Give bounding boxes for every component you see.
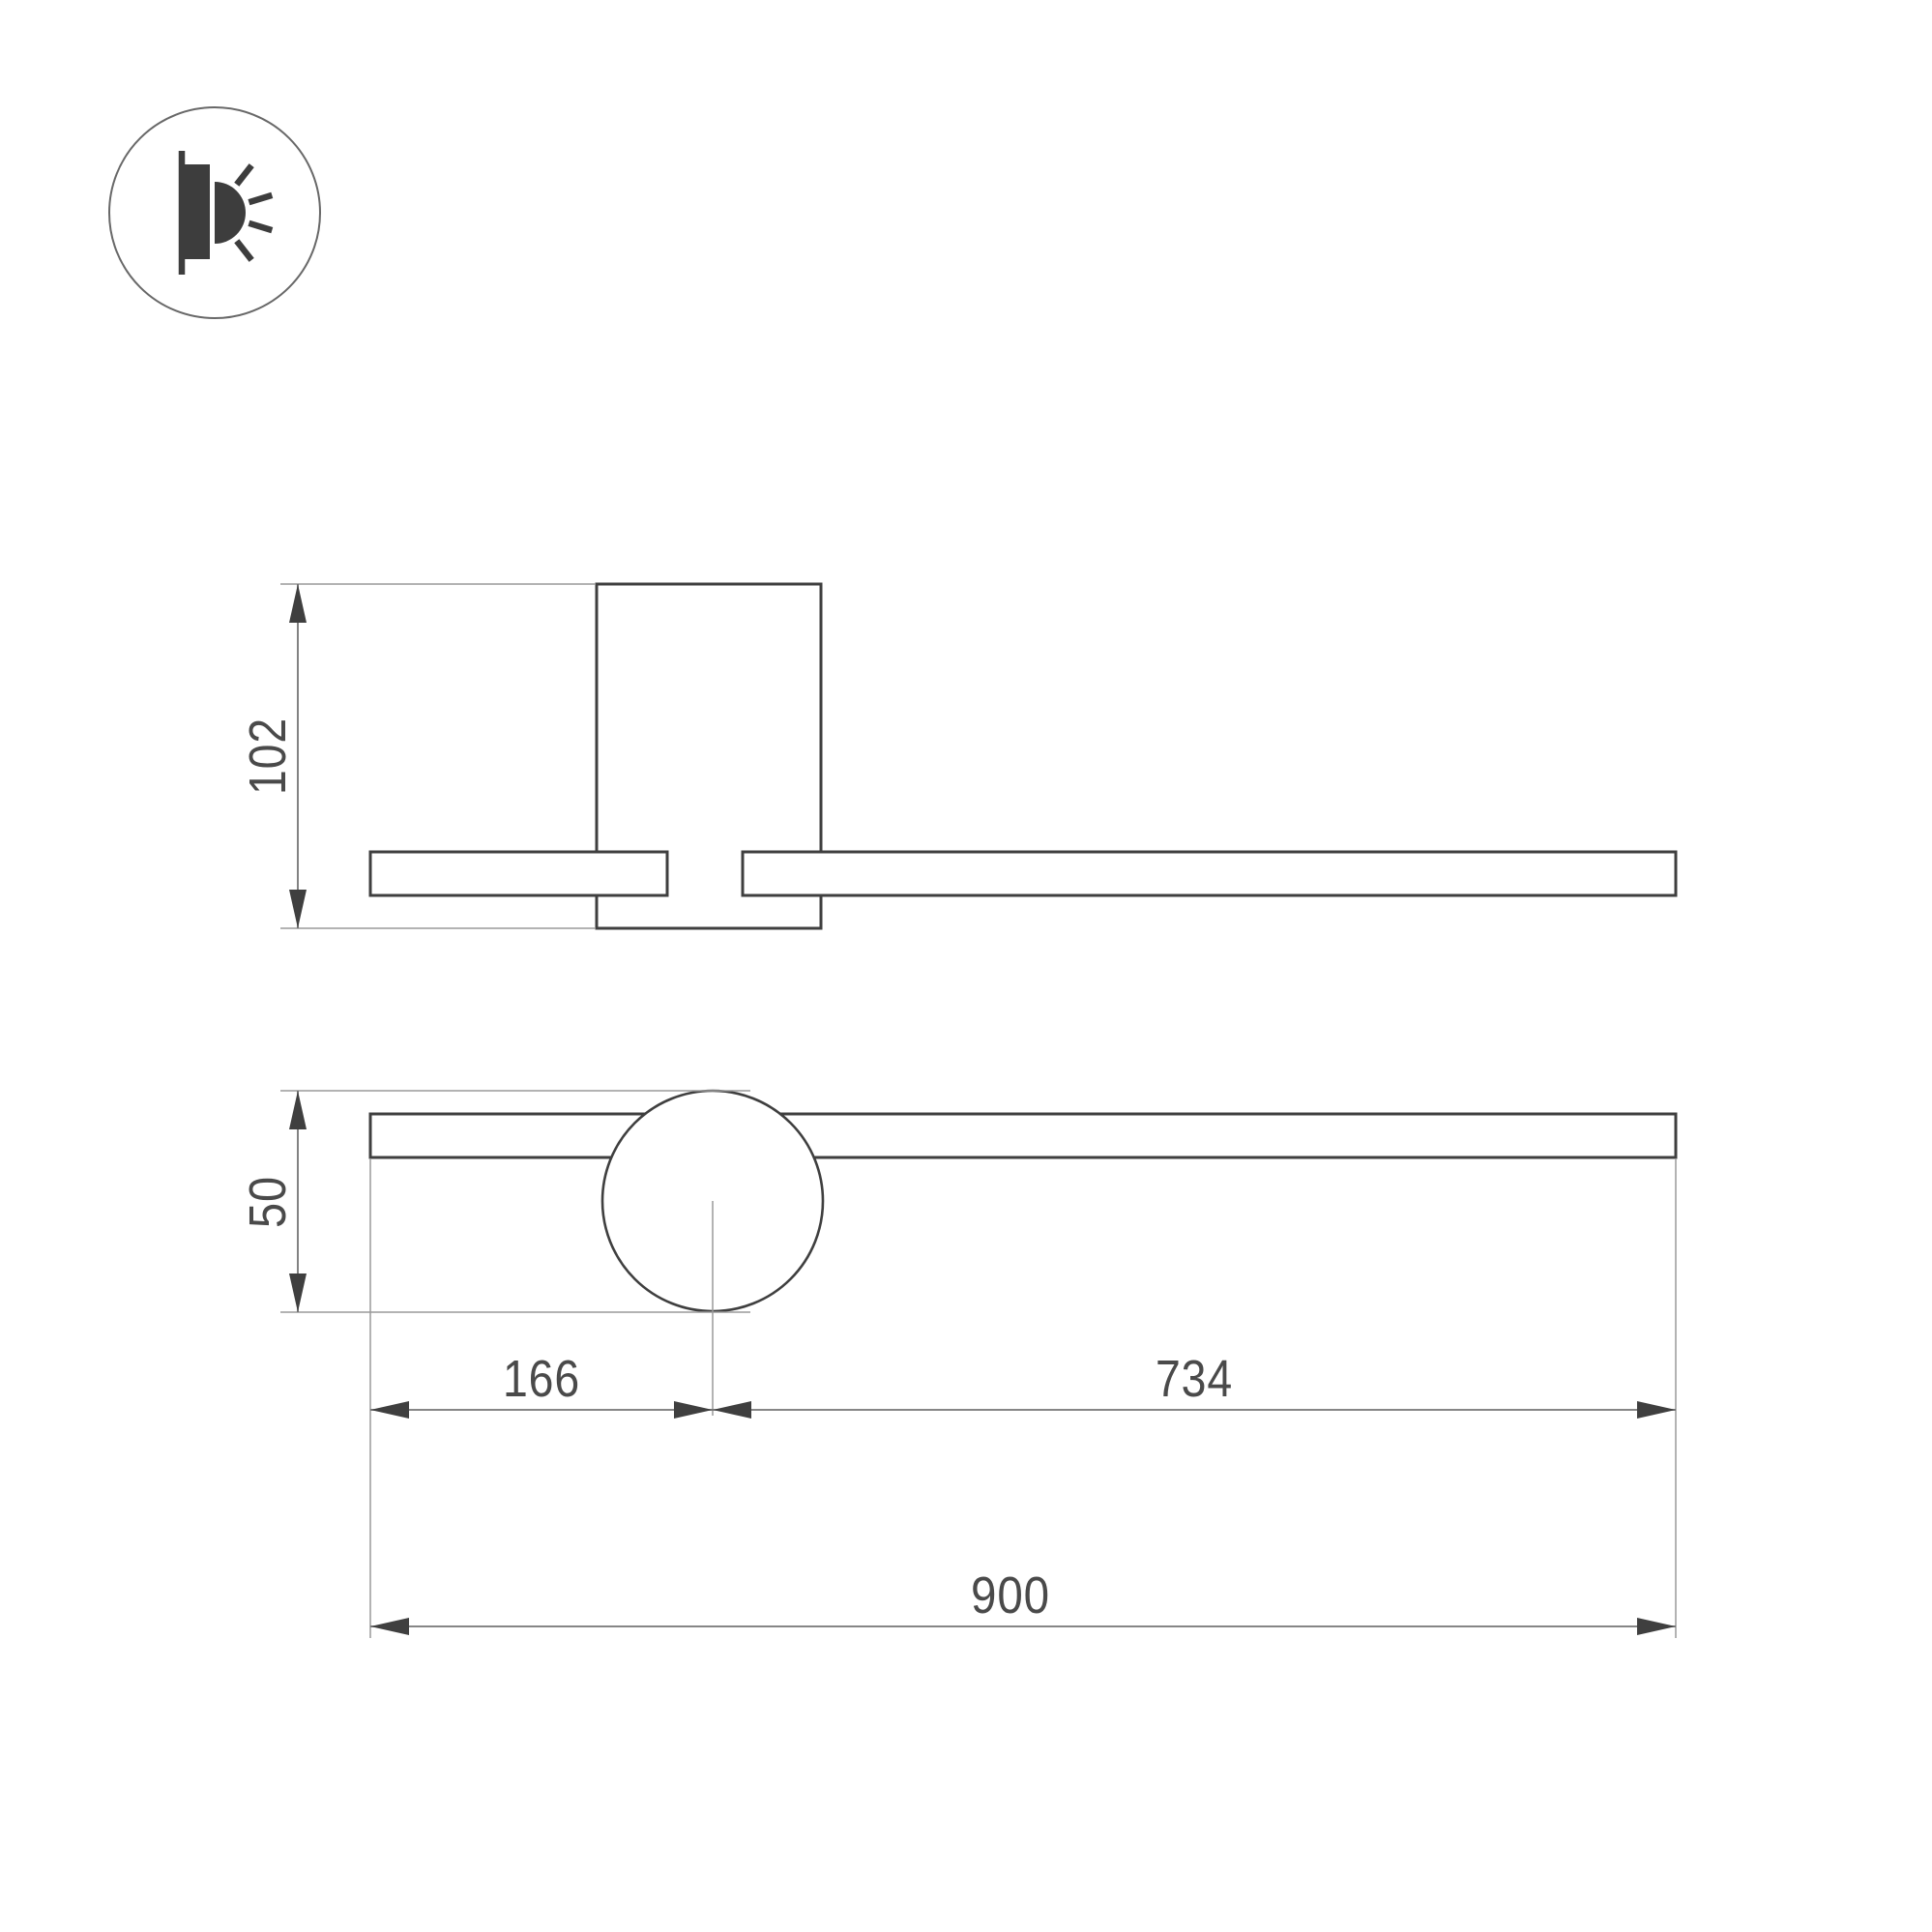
arrow-right [1637, 1618, 1676, 1635]
arrow-down [289, 1273, 307, 1312]
ray-icon [237, 165, 251, 185]
plate-diameter-label: 50 [239, 1176, 297, 1228]
wall-mounted-light-icon [109, 107, 320, 318]
arrow-right [674, 1401, 713, 1419]
offset-left-label: 166 [503, 1350, 580, 1408]
ray-icon [249, 223, 272, 230]
offset-right-label: 734 [1156, 1350, 1233, 1408]
tube-left-segment-side [370, 852, 667, 895]
arrow-left [713, 1401, 751, 1419]
ray-icon [249, 195, 272, 202]
total-length-dimension: 900 [370, 1566, 1676, 1635]
arrow-left [370, 1618, 409, 1635]
ray-icon [237, 241, 251, 260]
arrow-up [289, 584, 307, 623]
tube-right-segment-side [743, 852, 1676, 895]
arrow-up [289, 1091, 307, 1129]
arrow-left [370, 1401, 409, 1419]
fixture-body-icon [185, 164, 210, 259]
side-view [370, 584, 1676, 928]
technical-drawing-canvas: 102 50 166 734 [0, 0, 1932, 1932]
lamp-halfdome-icon [215, 182, 246, 244]
side-height-label: 102 [239, 717, 297, 795]
total-length-label: 900 [971, 1566, 1050, 1625]
fixture-dimension-drawing: 102 50 166 734 [0, 0, 1932, 1932]
arrow-down [289, 890, 307, 928]
tube-front [370, 1114, 1676, 1157]
arrow-right [1637, 1401, 1676, 1419]
